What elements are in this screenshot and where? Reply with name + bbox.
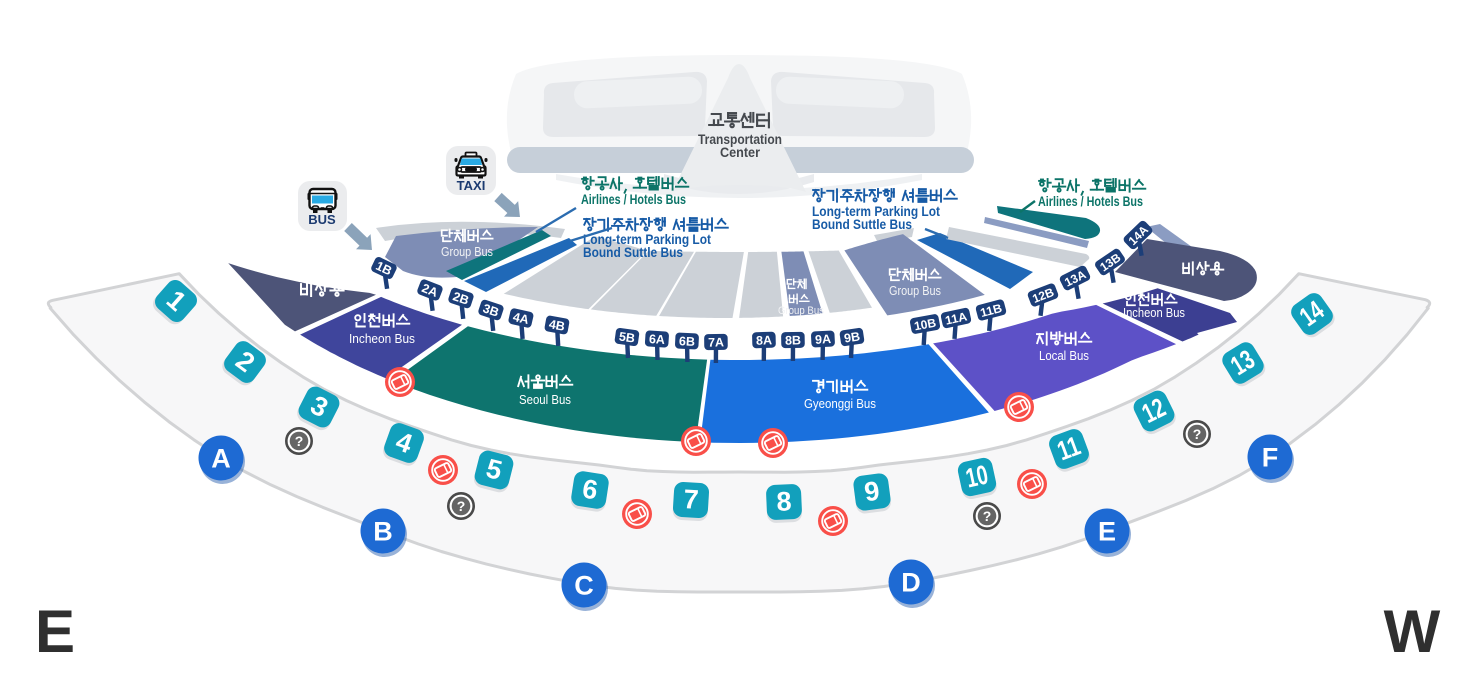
svg-text:Bound Suttle Bus: Bound Suttle Bus — [812, 216, 912, 232]
svg-text:D: D — [901, 568, 921, 598]
svg-text:7A: 7A — [708, 335, 724, 349]
svg-text:Group Bus: Group Bus — [441, 244, 493, 259]
svg-text:B: B — [373, 517, 393, 547]
svg-text:TAXI: TAXI — [457, 178, 486, 193]
svg-text:9B: 9B — [843, 329, 861, 345]
svg-text:8B: 8B — [785, 333, 801, 347]
svg-text:Local Bus: Local Bus — [1039, 348, 1089, 363]
svg-text:Seoul Bus: Seoul Bus — [519, 392, 571, 407]
svg-text:9A: 9A — [815, 332, 832, 347]
svg-text:Gyeonggi Bus: Gyeonggi Bus — [804, 396, 876, 411]
svg-text:Airlines / Hotels Bus: Airlines / Hotels Bus — [581, 191, 686, 207]
svg-text:8: 8 — [776, 486, 792, 517]
svg-text:Incheon Bus: Incheon Bus — [349, 331, 415, 346]
svg-text:?: ? — [295, 433, 304, 449]
svg-text:4B: 4B — [548, 317, 566, 334]
svg-text:8A: 8A — [756, 333, 772, 347]
svg-text:?: ? — [983, 508, 992, 524]
svg-text:C: C — [574, 571, 594, 601]
svg-text:7: 7 — [683, 484, 700, 515]
svg-text:E: E — [35, 598, 75, 665]
svg-text:A: A — [211, 444, 231, 474]
svg-text:Bound Suttle Bus: Bound Suttle Bus — [583, 244, 683, 260]
svg-text:W: W — [1384, 598, 1441, 665]
svg-text:6A: 6A — [649, 332, 666, 347]
svg-text:Airlines / Hotels Bus: Airlines / Hotels Bus — [1038, 193, 1143, 209]
svg-text:?: ? — [457, 498, 466, 514]
svg-text:5B: 5B — [618, 329, 636, 345]
svg-text:Incheon Bus: Incheon Bus — [1123, 306, 1185, 320]
svg-text:Group Bus: Group Bus — [778, 305, 824, 317]
svg-text:Group Bus: Group Bus — [889, 283, 941, 298]
svg-text:6B: 6B — [679, 334, 696, 349]
svg-text:?: ? — [1193, 426, 1202, 442]
svg-text:BUS: BUS — [308, 212, 336, 227]
svg-text:F: F — [1262, 443, 1279, 473]
svg-text:E: E — [1098, 517, 1116, 547]
svg-text:Center: Center — [720, 145, 761, 160]
